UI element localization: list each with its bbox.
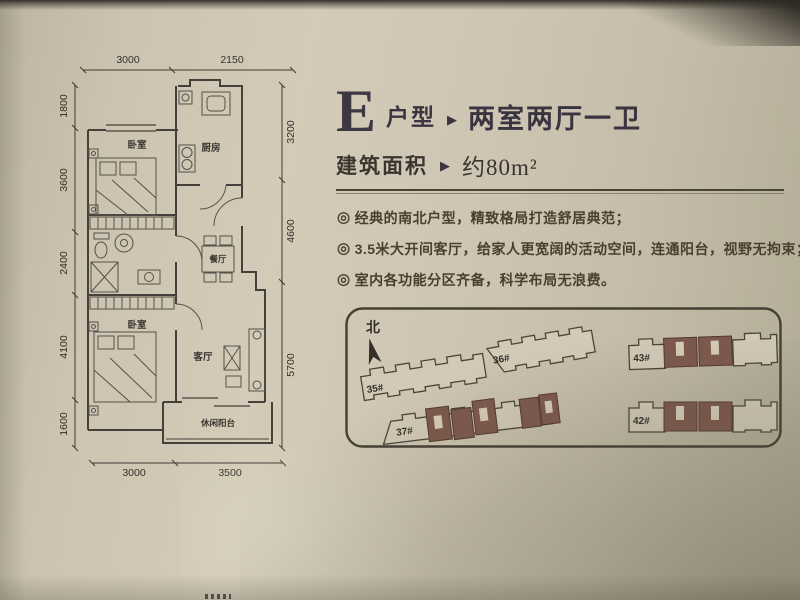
feature-item: ◎ 3.5米大开间客厅，给家人更宽阔的活动空间，连通阳台，视野无拘束； bbox=[337, 239, 789, 259]
feature-item: ◎ 室内各功能分区齐备，科学布局无浪费。 bbox=[337, 270, 789, 290]
dim-left-0: 1800 bbox=[58, 94, 70, 118]
bed-top bbox=[89, 149, 156, 215]
feature-item: ◎ 经典的南北户型，精致格局打造舒居典范； bbox=[337, 208, 789, 228]
unit-layout: 两室两厅一卫 bbox=[468, 97, 642, 136]
dim-right-0: 3200 bbox=[285, 120, 297, 144]
photo-shadow-left bbox=[0, 0, 26, 600]
room-label-kitchen: 厨房 bbox=[201, 142, 220, 154]
site-plan: 北 35# 36# 37# bbox=[345, 307, 782, 448]
dimension-lines bbox=[72, 67, 296, 466]
feature-text: 经典的南北户型，精致格局打造舒居典范； bbox=[355, 208, 631, 228]
bullet-icon: ◎ bbox=[337, 208, 351, 228]
building-label: 42# bbox=[633, 416, 650, 427]
room-label-dining: 餐厅 bbox=[208, 254, 227, 264]
photo-edge-top bbox=[0, 0, 800, 10]
room-label-balcony: 休闲阳台 bbox=[200, 418, 236, 428]
arrow-icon: ▶ bbox=[440, 158, 450, 174]
floor-plan: 卧室 厨房 餐厅 卧室 客厅 休闲阳台 3000 2150 1800 3600 … bbox=[50, 40, 320, 480]
north-label: 北 bbox=[366, 319, 380, 335]
dim-bottom-1: 3500 bbox=[218, 467, 242, 479]
kitchen-fixtures bbox=[179, 91, 230, 172]
arrow-icon: ▶ bbox=[447, 112, 457, 128]
building-37: 37# bbox=[380, 391, 561, 448]
bullet-icon: ◎ bbox=[337, 270, 351, 290]
unit-type-label: 户型 bbox=[386, 98, 436, 132]
area-value: 约80m² bbox=[462, 148, 538, 182]
room-label-living: 客厅 bbox=[192, 351, 213, 363]
unit-title-row: E 户型 ▶ 两室两厅一卫 bbox=[336, 86, 788, 137]
dim-top-0: 3000 bbox=[116, 54, 140, 66]
north-indicator: 北 bbox=[363, 319, 381, 365]
dim-left-1: 3600 bbox=[58, 168, 70, 192]
area-label: 建筑面积 bbox=[336, 150, 428, 180]
bed-bottom bbox=[89, 322, 156, 415]
dim-right-2: 5700 bbox=[285, 353, 297, 377]
dim-right-1: 4600 bbox=[285, 219, 297, 243]
dim-left-3: 4100 bbox=[58, 335, 70, 359]
room-label-bedroom-bottom: 卧室 bbox=[127, 319, 147, 331]
room-label-bedroom-top: 卧室 bbox=[127, 139, 147, 151]
unit-area-row: 建筑面积 ▶ 约80m² bbox=[336, 148, 788, 182]
feature-text: 3.5米大开间客厅，给家人更宽阔的活动空间，连通阳台，视野无拘束； bbox=[355, 239, 800, 259]
unit-header: E 户型 ▶ 两室两厅一卫 建筑面积 ▶ 约80m² bbox=[336, 86, 788, 182]
building-label: 43# bbox=[633, 353, 650, 365]
living-furniture bbox=[224, 329, 265, 391]
dim-left-2: 2400 bbox=[58, 251, 70, 275]
bathroom-fixtures bbox=[91, 233, 160, 292]
photo-shadow-bottom bbox=[0, 574, 800, 600]
building-36: 36# bbox=[486, 325, 596, 374]
building-43: 43# bbox=[628, 332, 777, 369]
dim-top-1: 2150 bbox=[220, 54, 244, 66]
building-label: 37# bbox=[396, 426, 414, 439]
feature-text: 室内各功能分区齐备，科学布局无浪费。 bbox=[355, 270, 616, 290]
unit-type-letter: E bbox=[336, 86, 376, 137]
cut-off-print-marks bbox=[205, 594, 231, 599]
building-42: 42# bbox=[629, 400, 777, 432]
north-arrow-icon bbox=[363, 337, 381, 365]
photo-edge-top-right bbox=[580, 0, 800, 46]
dim-bottom-0: 3000 bbox=[122, 467, 146, 479]
feature-list: ◎ 经典的南北户型，精致格局打造舒居典范； ◎ 3.5米大开间客厅，给家人更宽阔… bbox=[337, 208, 789, 301]
brochure-photo: 卧室 厨房 餐厅 卧室 客厅 休闲阳台 3000 2150 1800 3600 … bbox=[0, 0, 800, 600]
bullet-icon: ◎ bbox=[337, 239, 351, 259]
header-divider bbox=[336, 189, 784, 194]
dim-left-4: 1600 bbox=[58, 412, 70, 436]
